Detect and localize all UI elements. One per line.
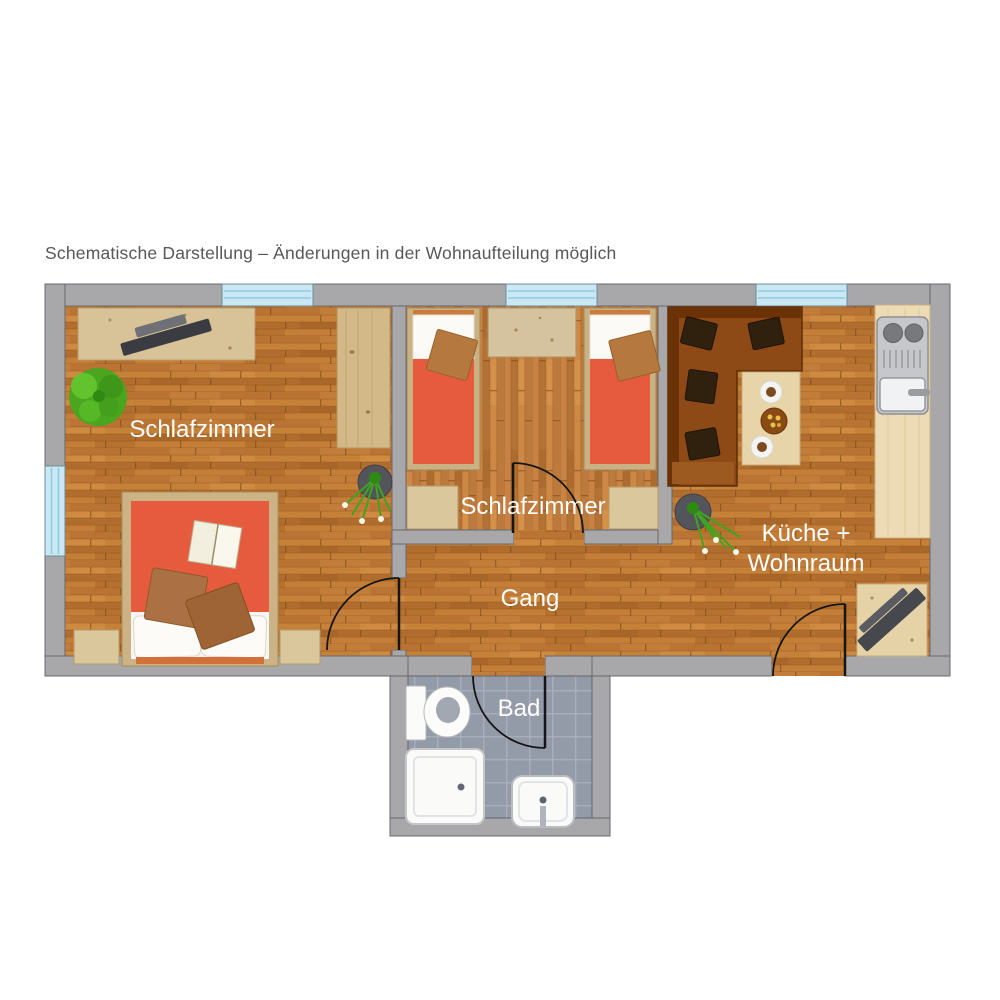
window bbox=[45, 466, 65, 556]
kitchen-unit bbox=[875, 305, 930, 538]
bowl bbox=[761, 408, 787, 434]
burner bbox=[884, 324, 903, 343]
double-bed bbox=[122, 492, 278, 666]
single-bed bbox=[407, 308, 480, 470]
drain bbox=[540, 797, 547, 804]
label-kitchen-living-line2: Wohnraum bbox=[748, 550, 865, 577]
caption-text: Schematische Darstellung – Änderungen in… bbox=[45, 243, 616, 263]
faucet bbox=[908, 389, 930, 396]
burner bbox=[905, 324, 923, 342]
shelf-between-beds bbox=[488, 308, 576, 357]
open-book bbox=[188, 520, 242, 568]
floor-plan-image: Schematische Darstellung – Änderungen in… bbox=[0, 0, 1000, 1000]
drainboard bbox=[884, 350, 920, 368]
plant-bush bbox=[69, 368, 127, 426]
window bbox=[756, 284, 847, 306]
window bbox=[506, 284, 597, 306]
toilet bbox=[406, 686, 470, 740]
drain bbox=[458, 784, 465, 791]
bed-foot-rail bbox=[136, 657, 264, 664]
floor-plan-page: Schematische Darstellung – Änderungen in… bbox=[0, 0, 1000, 1000]
label-hallway: Gang bbox=[501, 585, 560, 612]
label-bathroom: Bad bbox=[498, 695, 541, 722]
label-bedroom-left: Schlafzimmer bbox=[129, 416, 274, 443]
desk bbox=[78, 308, 255, 360]
entry-mat-bench bbox=[851, 581, 927, 656]
label-bedroom-middle: Schlafzimmer bbox=[460, 493, 605, 520]
nightstand bbox=[407, 486, 458, 529]
coffee-table bbox=[742, 372, 800, 465]
label-kitchen-living-line1: Küche + bbox=[762, 520, 851, 547]
nightstand bbox=[74, 630, 119, 664]
window bbox=[222, 284, 313, 306]
nightstand bbox=[609, 487, 658, 529]
washbasin bbox=[512, 776, 574, 827]
tap bbox=[540, 806, 546, 827]
single-bed bbox=[584, 308, 660, 470]
wardrobe bbox=[337, 308, 390, 448]
nightstand bbox=[280, 630, 320, 664]
shower bbox=[406, 749, 484, 824]
